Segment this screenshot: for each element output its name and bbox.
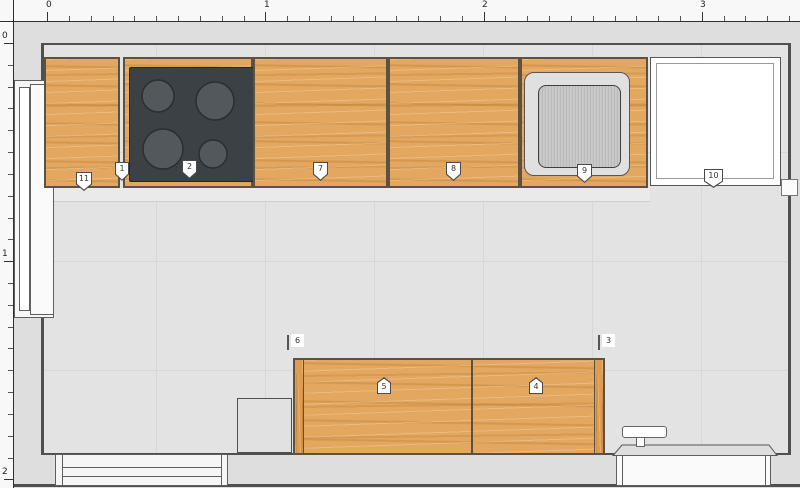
window-bottom-pane-line-2 [62,476,222,477]
marker-label: 1 [115,164,129,174]
marker-label: 11 [76,174,92,184]
ruler-tick [8,87,13,88]
appliance-10-door [656,63,774,179]
ruler-tick [8,348,13,349]
island-divider [471,360,473,453]
wall-right [788,43,791,455]
ruler-tick [724,16,725,21]
side-unit[interactable] [237,398,292,453]
ruler-corner [0,0,14,22]
ruler-tick [8,108,13,109]
ruler-tick [8,458,13,459]
window-bottom[interactable] [55,454,228,486]
burner-top-right [196,82,234,120]
window-bottom-frame-left [62,455,63,485]
ruler-tick [8,283,13,284]
ruler-tick [418,16,419,21]
item-marker-11[interactable]: 11 [76,172,92,191]
ruler-tick [462,16,463,21]
ruler-left-unit-0: 0 [2,32,8,41]
ruler-tick [8,414,13,415]
item-marker-10[interactable]: 10 [704,169,723,188]
marker-label: 10 [704,171,723,181]
ruler-tick [789,16,790,21]
door-leaf-line-right [765,456,766,485]
ruler-tick [8,218,13,219]
ruler-tick [113,16,114,21]
marker-label: 2 [182,162,197,172]
ruler-tick [8,370,13,371]
ruler-tick [134,16,135,21]
ruler-tick [4,479,13,480]
ruler-top-unit-2: 2 [482,1,488,10]
ruler-horizontal[interactable]: 0 1 2 3 [13,0,800,22]
ruler-tick [200,16,201,21]
appliance-10[interactable] [650,57,781,186]
ruler-left-unit-2: 2 [2,468,8,477]
ruler-tick [8,327,13,328]
kitchen-planner-canvas: 11 1 2 7 8 9 10 5 4 6 [0,0,800,488]
ruler-tick [156,16,157,21]
burner-bottom-right [199,140,227,168]
ruler-tick [8,305,13,306]
window-bottom-frame-right [221,455,222,485]
ruler-tick [69,16,70,21]
ruler-tick [593,16,594,21]
ruler-tick [375,16,376,21]
burner-top-left [142,80,174,112]
item-marker-5[interactable]: 5 [377,377,391,394]
ruler-left-unit-1: 1 [2,250,8,259]
ruler-tick [702,12,703,21]
wall-post [781,179,798,196]
island-side-panel-left [295,360,304,453]
ruler-tick [8,239,13,240]
ruler-tick [309,16,310,21]
ruler-tick [353,16,354,21]
marker-label: 5 [377,382,391,392]
ruler-tick [615,16,616,21]
window-left-sill [19,87,30,311]
marker-label: 8 [446,164,461,174]
ruler-tick [767,16,768,21]
ruler-tick [222,16,223,21]
item-marker-7[interactable]: 7 [313,162,328,181]
ruler-tick [527,16,528,21]
ruler-tick [178,16,179,21]
ruler-tick [8,196,13,197]
ruler-tick [658,16,659,21]
ruler-tick [244,16,245,21]
ruler-tick [8,152,13,153]
ref-label-6[interactable]: 6 [291,334,304,347]
door-handle-stem [636,437,645,447]
ruler-tick [331,16,332,21]
ruler-tick [745,16,746,21]
ref-tick-3 [598,335,600,350]
door-leaf-line-left [622,456,623,485]
ref-tick-6 [287,335,289,350]
marker-label: 4 [529,382,543,392]
ruler-tick [4,261,13,262]
item-marker-8[interactable]: 8 [446,162,461,181]
ruler-tick [636,16,637,21]
floor-grid-line [44,261,788,262]
ruler-tick [8,65,13,66]
marker-label: 7 [313,164,328,174]
item-marker-2[interactable]: 2 [182,160,197,179]
ruler-top-unit-1: 1 [264,1,270,10]
wall-top [41,43,791,45]
burner-bottom-left [143,129,183,169]
ruler-tick [440,16,441,21]
ruler-top-unit-0: 0 [46,1,52,10]
marker-label: 9 [577,166,592,176]
item-marker-4[interactable]: 4 [529,377,543,394]
cabinet-11[interactable] [44,57,120,188]
ruler-tick [47,12,48,21]
ruler-tick [505,16,506,21]
door-handle[interactable] [622,426,667,438]
item-marker-1[interactable]: 1 [115,162,129,181]
ruler-vertical[interactable]: 0 1 2 [0,21,14,488]
ruler-tick [4,43,13,44]
ruler-tick [8,130,13,131]
ruler-tick [484,12,485,21]
island[interactable] [293,358,605,455]
ruler-tick [8,436,13,437]
ruler-tick [396,16,397,21]
ruler-tick [571,16,572,21]
countertop-edge [44,188,650,202]
door-leaf[interactable] [616,455,771,486]
ref-label-3[interactable]: 3 [602,334,615,347]
ruler-tick [8,174,13,175]
ruler-top-unit-3: 3 [700,1,706,10]
ruler-tick [265,12,266,21]
sink-surround [524,72,630,176]
ruler-tick [549,16,550,21]
sink-basin[interactable] [538,85,621,168]
window-bottom-pane-line-1 [62,467,222,468]
island-side-panel-right [594,360,603,453]
ruler-tick [680,16,681,21]
ruler-tick [287,16,288,21]
ruler-tick [91,16,92,21]
ruler-tick [8,392,13,393]
item-marker-9[interactable]: 9 [577,164,592,183]
